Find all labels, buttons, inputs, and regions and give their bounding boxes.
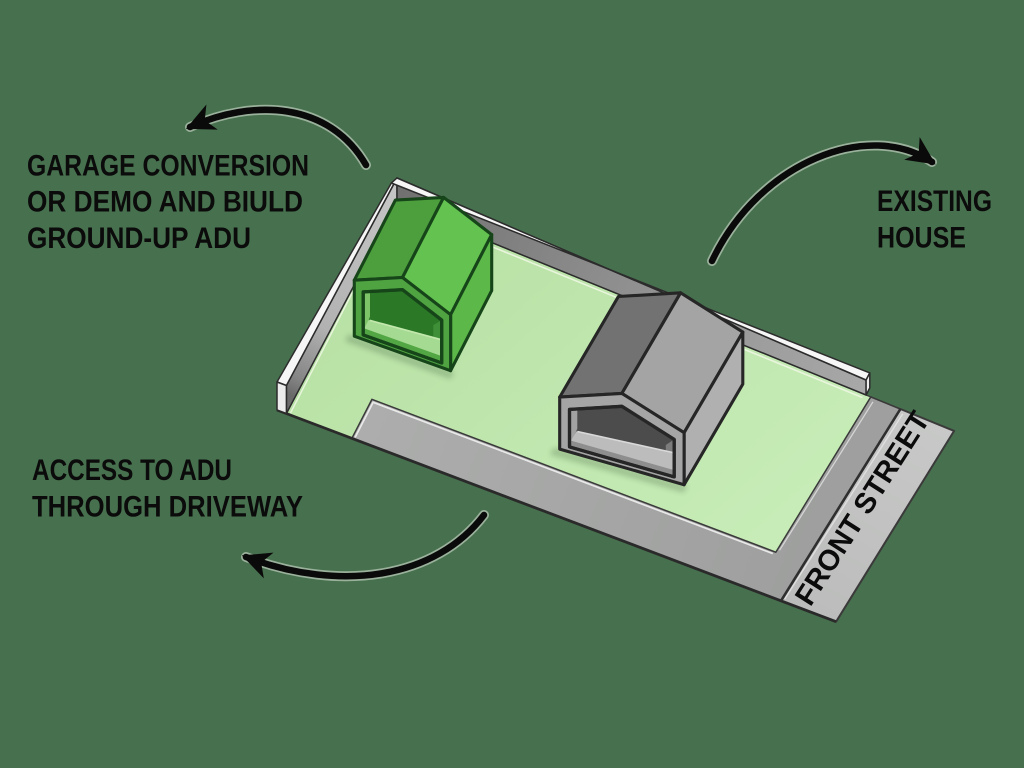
svg-text:HOUSE: HOUSE	[877, 222, 966, 255]
svg-text:THROUGH DRIVEWAY: THROUGH DRIVEWAY	[32, 491, 303, 524]
svg-text:OR DEMO AND BIULD: OR DEMO AND BIULD	[27, 186, 303, 219]
svg-text:GARAGE CONVERSION: GARAGE CONVERSION	[27, 150, 309, 183]
svg-text:ACCESS TO ADU: ACCESS TO ADU	[32, 454, 232, 487]
svg-text:EXISTING: EXISTING	[877, 185, 992, 218]
svg-text:GROUND-UP ADU: GROUND-UP ADU	[27, 222, 251, 255]
